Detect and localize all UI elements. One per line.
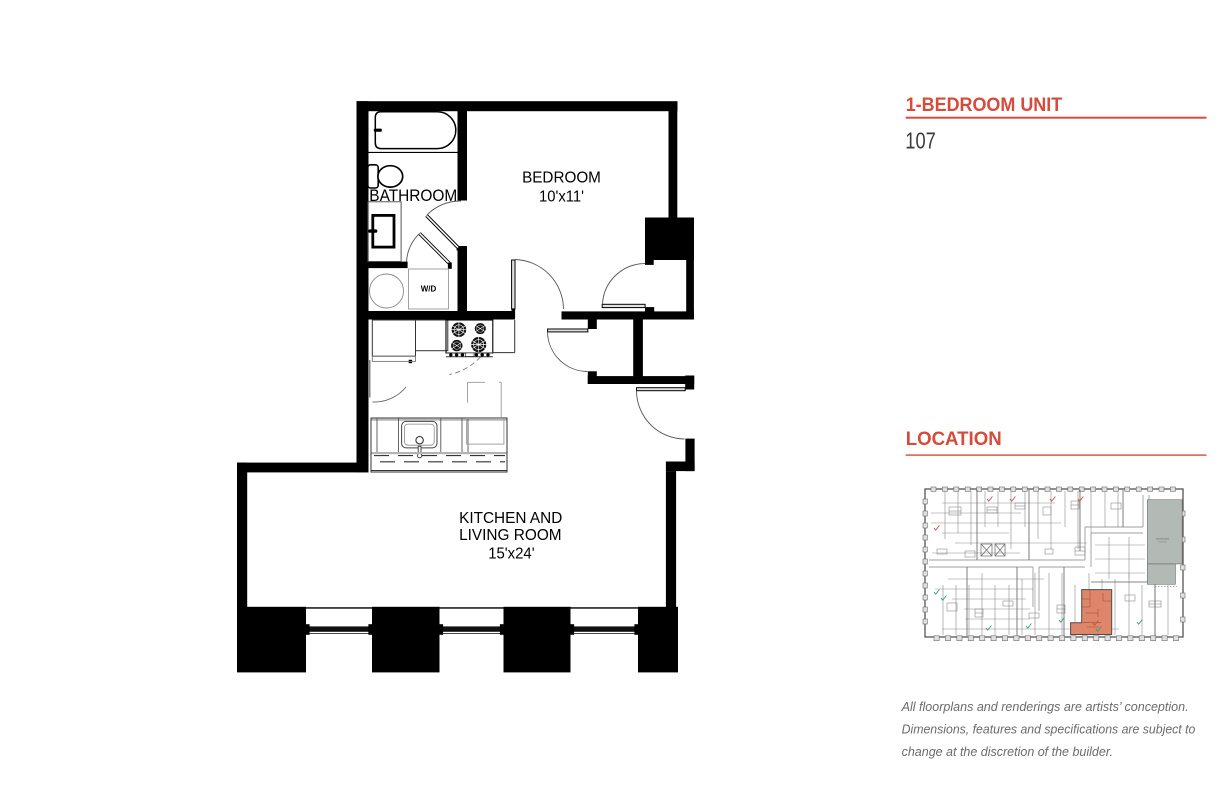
svg-text:change at the discretion of th: change at the discretion of the builder. bbox=[902, 744, 1113, 759]
svg-text:KITCHEN AND: KITCHEN AND bbox=[459, 510, 562, 527]
svg-text:All floorplans and renderings: All floorplans and renderings are artist… bbox=[901, 699, 1189, 714]
svg-text:LIVING ROOM: LIVING ROOM bbox=[459, 527, 561, 544]
svg-text:LOCATION: LOCATION bbox=[906, 429, 1002, 450]
svg-text:1-BEDROOM UNIT: 1-BEDROOM UNIT bbox=[906, 95, 1063, 116]
svg-text:15'x24': 15'x24' bbox=[488, 546, 534, 563]
svg-text:BATHROOM: BATHROOM bbox=[369, 186, 457, 205]
svg-text:10'x11': 10'x11' bbox=[539, 189, 584, 206]
svg-text:W/D: W/D bbox=[421, 285, 437, 294]
svg-text:107: 107 bbox=[905, 127, 936, 153]
svg-text:Dimensions, features and speci: Dimensions, features and specifications … bbox=[902, 721, 1196, 736]
svg-text:BEDROOM: BEDROOM bbox=[522, 169, 601, 186]
